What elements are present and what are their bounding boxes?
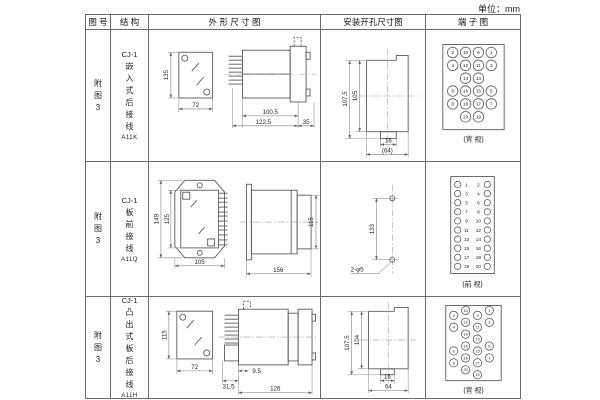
col-header-install: 安装开孔尺寸图 bbox=[321, 15, 426, 30]
terminal-diagram-a11k: 2109141211314136161558181772019(背 视) bbox=[426, 30, 520, 162]
outline-diagram-a11k: 135 72 100.5 122.5 bbox=[149, 30, 320, 162]
install-dimensions: 133 2-φ5 bbox=[351, 198, 392, 273]
terminal-pin-number: 15 bbox=[476, 88, 482, 93]
terminal-pin-number: 5 bbox=[465, 200, 468, 206]
install-diagram-a11h: 107.5 104 16 64 bbox=[321, 297, 425, 399]
terminal-pin-number: 18 bbox=[463, 101, 469, 106]
terminal-pin-number: 1 bbox=[488, 307, 490, 312]
terminal-cell-row2: 1234567891011121314151617181920(前 视) bbox=[426, 162, 521, 297]
terminal-pin bbox=[454, 208, 460, 214]
terminal-pin-number: 3 bbox=[465, 191, 468, 197]
terminal-pin bbox=[454, 254, 460, 260]
terminal-pin-number: 6 bbox=[477, 200, 480, 206]
terminal-block-outline bbox=[451, 176, 495, 273]
terminal-cell-row1: 2109141211314136161558181772019(背 视) bbox=[426, 30, 521, 162]
terminal-view-label: (前 视) bbox=[462, 279, 482, 288]
dim-front-inner-h: 125 bbox=[164, 213, 171, 224]
side-dimensions: 156 115 bbox=[246, 195, 319, 277]
terminal-pin-number: 2 bbox=[477, 182, 480, 188]
terminal-pin bbox=[484, 226, 490, 232]
terminal-pin bbox=[454, 235, 460, 241]
dim-side-flange: 35 bbox=[303, 118, 310, 125]
dim-terminal-proj: 9.5 bbox=[252, 367, 261, 374]
terminal-pin-number: 15 bbox=[464, 245, 470, 251]
dim-front-width: 72 bbox=[191, 363, 198, 370]
front-view bbox=[175, 180, 228, 258]
terminal-diagram-a11q: 1234567891011121314151617181920(前 视) bbox=[426, 162, 520, 297]
dim-front-width: 72 bbox=[192, 101, 199, 108]
terminal-pin-number: 17 bbox=[464, 255, 470, 261]
col-header-structure: 结 构 bbox=[111, 15, 149, 30]
spec-table: 图 号 结 构 外 形 尺 寸 图 安装开孔尺寸图 端 子 图 附图3 CJ-1… bbox=[85, 14, 521, 399]
structure-desc: 板前接线 bbox=[125, 207, 134, 255]
figure-number-row1: 附图3 bbox=[86, 30, 111, 162]
side-view bbox=[225, 301, 316, 365]
figure-number-row2: 附图3 bbox=[86, 162, 111, 297]
terminal-pin bbox=[454, 263, 460, 269]
terminal-pin-number: 12 bbox=[463, 62, 469, 67]
terminal-pin-number: 11 bbox=[464, 227, 469, 233]
terminal-pin-number: 10 bbox=[476, 218, 482, 224]
terminal-pin bbox=[484, 245, 490, 251]
terminal-pin-number: 16 bbox=[463, 88, 469, 93]
dim-side-height: 115 bbox=[308, 216, 315, 226]
dim-hole-spacing: 133 bbox=[369, 223, 376, 234]
outline-cell-row1: 135 72 100.5 122.5 bbox=[149, 30, 321, 162]
terminal-pin bbox=[454, 245, 460, 251]
outline-diagram-a11q: 149 125 105 156 115 bbox=[149, 162, 320, 297]
terminal-pin bbox=[484, 181, 490, 187]
dim-front-height: 115 bbox=[161, 329, 168, 339]
col-header-terminal: 端 子 图 bbox=[426, 15, 521, 30]
terminal-pin-number: 19 bbox=[476, 114, 482, 119]
terminal-pin-number: 16 bbox=[476, 245, 482, 251]
structure-row2: CJ-1 板前接线 A11Q bbox=[111, 162, 149, 297]
terminal-pin-number: 4 bbox=[477, 191, 480, 197]
col-header-outline: 外 形 尺 寸 图 bbox=[149, 15, 321, 30]
terminal-pin bbox=[484, 263, 490, 269]
model-label: CJ-1 bbox=[122, 50, 138, 59]
terminal-pin-number: 7 bbox=[465, 209, 468, 215]
type-code: A11H bbox=[121, 393, 138, 399]
type-code: A11K bbox=[121, 135, 137, 141]
figure-number-row3: 附图3 bbox=[86, 297, 111, 399]
hole-spec-label: 2-φ5 bbox=[351, 266, 364, 273]
figure-number-text: 附图3 bbox=[93, 78, 102, 114]
figure-number-text: 附图3 bbox=[93, 330, 102, 366]
dim-side-length: 156 bbox=[273, 266, 284, 273]
dim-tab-width: 16 bbox=[385, 137, 392, 144]
terminal-pin-number: 10 bbox=[463, 50, 469, 55]
terminal-pin bbox=[484, 254, 490, 260]
terminal-pin-number: 12 bbox=[463, 319, 467, 324]
front-dimensions: 115 72 bbox=[161, 311, 212, 374]
terminal-pin-number: 14 bbox=[476, 236, 482, 242]
front-dimensions: 135 72 bbox=[163, 52, 213, 112]
dim-cutout-width: 64 bbox=[385, 383, 392, 390]
model-label: CJ-1 bbox=[122, 297, 138, 305]
side-dimensions: 9.5 31.5 126 bbox=[223, 360, 313, 394]
terminal-pin-number: 13 bbox=[464, 236, 470, 242]
terminal-pin-number: 14 bbox=[463, 75, 469, 80]
terminal-pin bbox=[454, 181, 460, 187]
side-dimensions: 100.5 122.5 35 bbox=[233, 88, 315, 128]
terminal-pin-number: 17 bbox=[475, 360, 479, 365]
install-dimensions: 107.5 104 16 64 bbox=[344, 311, 408, 393]
install-cell-row1: 107.5 105 16 (64) bbox=[321, 30, 426, 162]
terminal-pin-number: 20 bbox=[463, 114, 469, 119]
side-view bbox=[229, 37, 311, 102]
outline-cell-row2: 149 125 105 156 115 bbox=[149, 162, 321, 297]
terminal-pin-number: 20 bbox=[476, 264, 482, 270]
install-cell-row2: 133 2-φ5 bbox=[321, 162, 426, 297]
dim-cutout-outer-h: 107.5 bbox=[342, 90, 349, 106]
terminal-pin bbox=[454, 217, 460, 223]
terminal-pin-number: 7 bbox=[488, 355, 490, 360]
outline-cell-row3: 115 72 9.5 31.5 bbox=[149, 297, 321, 399]
dim-front-outer-h: 149 bbox=[153, 213, 160, 224]
terminal-pin bbox=[484, 199, 490, 205]
install-diagram-a11q: 133 2-φ5 bbox=[321, 162, 425, 297]
dim-side-length: 126 bbox=[270, 385, 281, 392]
structure-row3: CJ-1 凸出式板后接线 A11H bbox=[111, 297, 149, 399]
structure-desc: 嵌入式后接线 bbox=[125, 61, 134, 133]
front-dimensions: 149 125 105 bbox=[153, 180, 224, 268]
dim-cutout-outer-h: 107.5 bbox=[344, 334, 351, 350]
terminal-pin bbox=[484, 208, 490, 214]
dim-front-height: 135 bbox=[163, 69, 170, 80]
dim-cutout-width: (64) bbox=[382, 147, 393, 154]
dim-cutout-inner-h: 105 bbox=[352, 90, 359, 101]
install-cell-row3: 107.5 104 16 64 bbox=[321, 297, 426, 399]
terminal-pin bbox=[454, 226, 460, 232]
front-view bbox=[177, 311, 213, 359]
model-label: CJ-1 bbox=[122, 196, 138, 205]
type-code: A11Q bbox=[121, 257, 138, 263]
terminal-pin bbox=[484, 217, 490, 223]
terminal-pin-number: 8 bbox=[477, 209, 480, 215]
terminal-pin-number: 12 bbox=[476, 227, 482, 233]
terminal-pin-number: 1 bbox=[465, 182, 468, 188]
terminal-view-label: (背 视) bbox=[463, 385, 483, 394]
terminal-pin-number: 11 bbox=[476, 62, 481, 67]
terminal-pin bbox=[484, 235, 490, 241]
structure-row1: CJ-1 嵌入式后接线 A11K bbox=[111, 30, 149, 162]
terminal-pin-number: 9 bbox=[465, 218, 468, 224]
dim-tab-width: 16 bbox=[384, 373, 391, 380]
terminal-pin-number: 2 bbox=[453, 312, 455, 317]
terminal-pin bbox=[454, 190, 460, 196]
terminal-pin bbox=[484, 190, 490, 196]
figure-number-text: 附图3 bbox=[93, 211, 102, 247]
dim-cutout-inner-h: 104 bbox=[354, 334, 361, 345]
front-view bbox=[179, 52, 213, 98]
install-dimensions: 107.5 105 16 (64) bbox=[342, 60, 408, 157]
terminal-diagram-a11h: 2109141211314136161558181772019(背 视) bbox=[426, 297, 520, 399]
dim-side-overall: 122.5 bbox=[256, 118, 272, 125]
terminal-pin-number: 19 bbox=[464, 264, 470, 270]
dim-rear-proj: 31.5 bbox=[223, 383, 236, 390]
outline-diagram-a11h: 115 72 9.5 31.5 bbox=[149, 297, 320, 399]
dim-front-width: 105 bbox=[195, 258, 206, 265]
dim-side-depth: 100.5 bbox=[263, 108, 279, 115]
structure-desc: 凸出式板后接线 bbox=[125, 307, 134, 391]
terminal-pin-number: 17 bbox=[476, 101, 482, 106]
terminal-pin bbox=[454, 199, 460, 205]
terminal-pin-number: 13 bbox=[476, 75, 482, 80]
col-header-figure: 图 号 bbox=[86, 15, 111, 30]
terminal-pin-number: 11 bbox=[475, 324, 479, 329]
terminal-pin-number: 18 bbox=[476, 255, 482, 261]
terminal-pin-number: 9 bbox=[476, 312, 478, 317]
terminal-pin-number: 19 bbox=[475, 372, 479, 377]
terminal-view-label: (背 视) bbox=[463, 134, 483, 143]
install-diagram-a11k: 107.5 105 16 (64) bbox=[321, 30, 425, 162]
terminal-cell-row3: 2109141211314136161558181772019(背 视) bbox=[426, 297, 521, 399]
